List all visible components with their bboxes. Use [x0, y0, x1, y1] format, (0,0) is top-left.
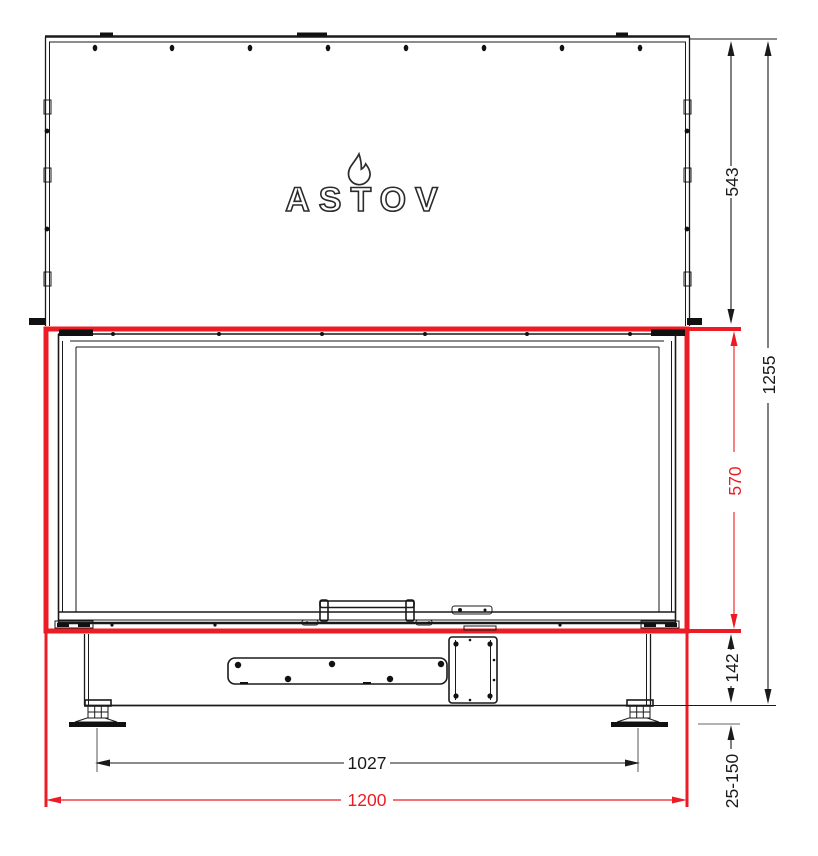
top-tab [616, 33, 628, 37]
junction-box [449, 637, 497, 703]
dim-label-25-150: 25-150 [722, 753, 742, 808]
dim-label-1200: 1200 [348, 790, 387, 810]
dim-total-height: 1255 [759, 41, 779, 704]
door-top-bracket-right [651, 330, 685, 337]
dim-base-height: 142 [722, 634, 742, 703]
pedestal [84, 634, 651, 706]
foot-right [611, 700, 668, 727]
top-bolt-row [93, 45, 643, 51]
dim-label-543: 543 [722, 167, 742, 196]
fireplace-front-view-drawing: ASTOV [0, 0, 818, 856]
brand-logo: ASTOV [285, 154, 447, 219]
air-intake-plate [228, 658, 447, 684]
screw [45, 129, 50, 134]
dim-firebox-height: 570 [725, 331, 745, 629]
dim-top-section-height: 543 [722, 41, 742, 324]
door-glass [58, 347, 676, 612]
dim-total-width: 1200 [46, 790, 687, 810]
technical-drawing-page: ASTOV [0, 0, 818, 856]
door-top-bracket-left [59, 330, 93, 337]
pivot-bracket-left [29, 318, 46, 325]
top-tab [100, 33, 113, 37]
firebox-door [55, 330, 685, 631]
screw [685, 227, 690, 232]
dim-label-1255: 1255 [759, 356, 779, 395]
dim-label-570: 570 [725, 466, 745, 495]
firebox-highlight [46, 329, 741, 807]
dim-leg-adjust-range: 25-150 [722, 725, 742, 808]
screw [685, 129, 690, 134]
dim-feet-spacing: 1027 [95, 753, 640, 773]
top-tab [297, 33, 327, 37]
foot-left [69, 700, 126, 727]
firebox-highlight-outline [46, 329, 687, 631]
pivot-bracket-right [687, 318, 702, 325]
brand-text: ASTOV [285, 181, 447, 219]
screw [45, 227, 50, 232]
dim-label-142: 142 [722, 653, 742, 682]
dim-label-1027: 1027 [348, 753, 387, 773]
